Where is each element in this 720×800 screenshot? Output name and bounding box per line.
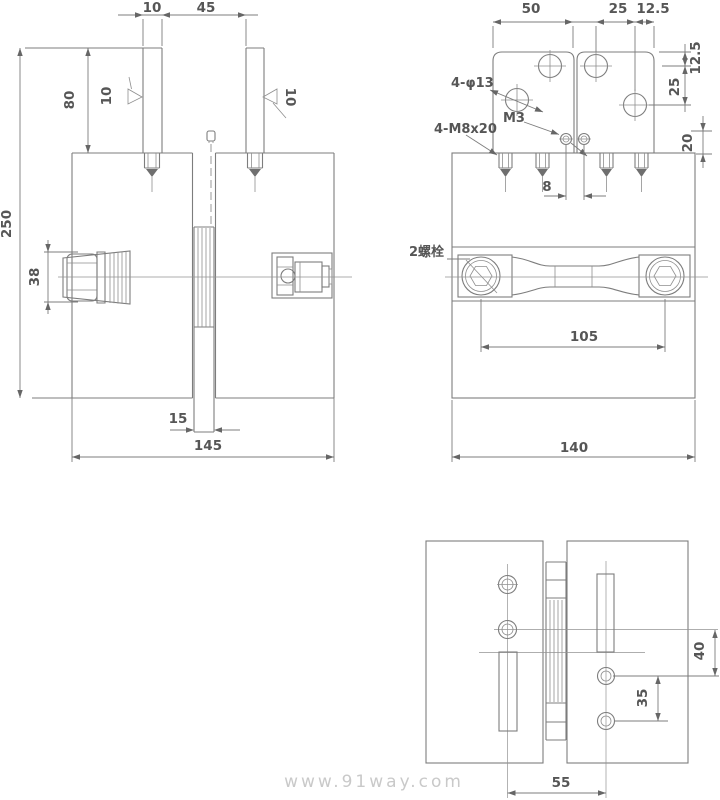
bottom-blade xyxy=(546,562,566,740)
arrowhead xyxy=(598,790,606,795)
bottom-plate-left xyxy=(426,541,543,763)
arrowhead xyxy=(72,454,80,459)
front-dim-rod-width: 10 xyxy=(143,0,162,16)
arrowhead xyxy=(565,19,573,24)
drawing-canvas: 10 45 80 10 10 250 38 15 145 xyxy=(0,0,720,800)
front-stud-centerlines xyxy=(152,177,255,192)
side-body-outline xyxy=(452,153,695,398)
side-view: 50 25 12.5 12.5 25 20 4-φ13 M3 4-M8x20 8 xyxy=(409,1,712,462)
front-rod-studs xyxy=(145,153,263,168)
arrowhead xyxy=(700,123,705,131)
side-dim-top-to-hole: 12.5 xyxy=(688,41,704,74)
technical-drawing: 10 45 80 10 10 250 38 15 145 xyxy=(0,0,720,800)
side-label-through-holes: 4-φ13 xyxy=(451,76,494,91)
arrowhead xyxy=(238,12,246,17)
side-leader-phi13 xyxy=(490,90,543,112)
front-slot xyxy=(193,153,216,398)
arrowhead xyxy=(85,145,90,153)
arrowhead xyxy=(535,106,544,112)
watermark: www.91way.com xyxy=(284,772,464,792)
arrowhead xyxy=(45,302,50,310)
arrowhead xyxy=(712,630,717,638)
arrowhead xyxy=(596,19,604,24)
arrowhead xyxy=(452,454,460,459)
bottom-dim-hole-offset: 40 xyxy=(692,642,708,661)
side-dim-screw-spacing: 8 xyxy=(542,179,551,195)
arrowhead xyxy=(687,454,695,459)
front-stud-tip-right xyxy=(249,169,261,177)
arrowhead xyxy=(627,19,635,24)
arrowhead xyxy=(326,454,334,459)
side-dim-plate-thickness: 20 xyxy=(680,134,696,153)
side-dim-hole-spacing-v: 25 xyxy=(667,78,683,97)
arrowhead xyxy=(85,48,90,56)
front-blade xyxy=(194,227,214,432)
arrowhead xyxy=(635,19,643,24)
side-dim-hole-to-edge: 12.5 xyxy=(636,1,669,17)
front-dim-total-height: 250 xyxy=(0,210,15,238)
front-view: 10 45 80 10 10 250 38 15 145 xyxy=(0,0,352,462)
side-holes-m3 xyxy=(559,134,591,145)
arrowhead xyxy=(481,344,489,349)
side-plate-right xyxy=(577,52,654,153)
bottom-plate-right xyxy=(567,541,688,763)
arrowhead xyxy=(682,97,687,105)
front-screw-head xyxy=(207,131,215,141)
bottom-dim-hole-spacing: 35 xyxy=(635,689,651,708)
front-dim-blade-width: 15 xyxy=(169,411,188,427)
front-gland-collar xyxy=(97,252,105,303)
arrowhead xyxy=(551,129,559,134)
finish-mark-left-icon xyxy=(128,77,142,104)
bottom-left-slot xyxy=(499,652,517,731)
bottom-view: 40 35 55 xyxy=(426,541,719,798)
arrowhead xyxy=(186,427,194,432)
arrowhead xyxy=(17,390,22,398)
arrowhead xyxy=(682,58,687,66)
front-dim-top-line xyxy=(118,15,258,46)
side-dim-plate-width: 50 xyxy=(522,1,541,17)
side-label-studs: 4-M8x20 xyxy=(434,122,497,137)
front-blade-hatch xyxy=(198,228,210,327)
arrowhead xyxy=(508,790,516,795)
front-connector-flange xyxy=(322,266,329,287)
arrowhead xyxy=(584,193,592,198)
side-dim-body-width: 140 xyxy=(560,440,588,456)
side-label-set-screw: M3 xyxy=(503,111,525,126)
bottom-dim-center-distance: 55 xyxy=(552,775,571,791)
arrowhead xyxy=(45,244,50,252)
arrowhead xyxy=(214,427,222,432)
arrowhead xyxy=(490,90,499,96)
arrowhead xyxy=(558,193,566,198)
front-dim-80-line xyxy=(25,48,143,153)
front-finish-left: 10 xyxy=(99,87,115,106)
front-stud-tip-left xyxy=(146,169,158,177)
front-dim-rod-length: 80 xyxy=(62,91,78,110)
arrowhead xyxy=(646,19,654,24)
arrowhead xyxy=(17,48,22,56)
side-dim-hole-to-hole: 25 xyxy=(609,1,628,17)
arrowhead xyxy=(655,676,660,684)
arrowhead xyxy=(162,12,170,17)
front-dim-total-width: 145 xyxy=(194,438,222,454)
front-rods xyxy=(143,48,264,153)
arrowhead xyxy=(655,713,660,721)
front-rod-stud-threads xyxy=(148,153,259,168)
arrowhead xyxy=(657,344,665,349)
arrowhead xyxy=(712,668,717,676)
arrowhead xyxy=(579,149,587,156)
arrowhead xyxy=(493,19,501,24)
bottom-right-slot xyxy=(597,574,614,652)
side-label-bolts: 2螺栓 xyxy=(409,244,444,260)
front-gland-ribs xyxy=(110,251,126,304)
side-link xyxy=(458,255,690,297)
side-dim-bolt-centers: 105 xyxy=(570,329,598,345)
front-dim-rod-gap: 45 xyxy=(197,0,216,16)
arrowhead xyxy=(700,154,705,162)
bottom-blade-hatch xyxy=(550,600,562,702)
front-finish-right: 10 xyxy=(282,88,298,107)
side-studs xyxy=(499,153,648,192)
arrowhead xyxy=(682,66,687,74)
front-dim-gland: 38 xyxy=(27,268,43,287)
front-connector-bar xyxy=(277,257,293,295)
